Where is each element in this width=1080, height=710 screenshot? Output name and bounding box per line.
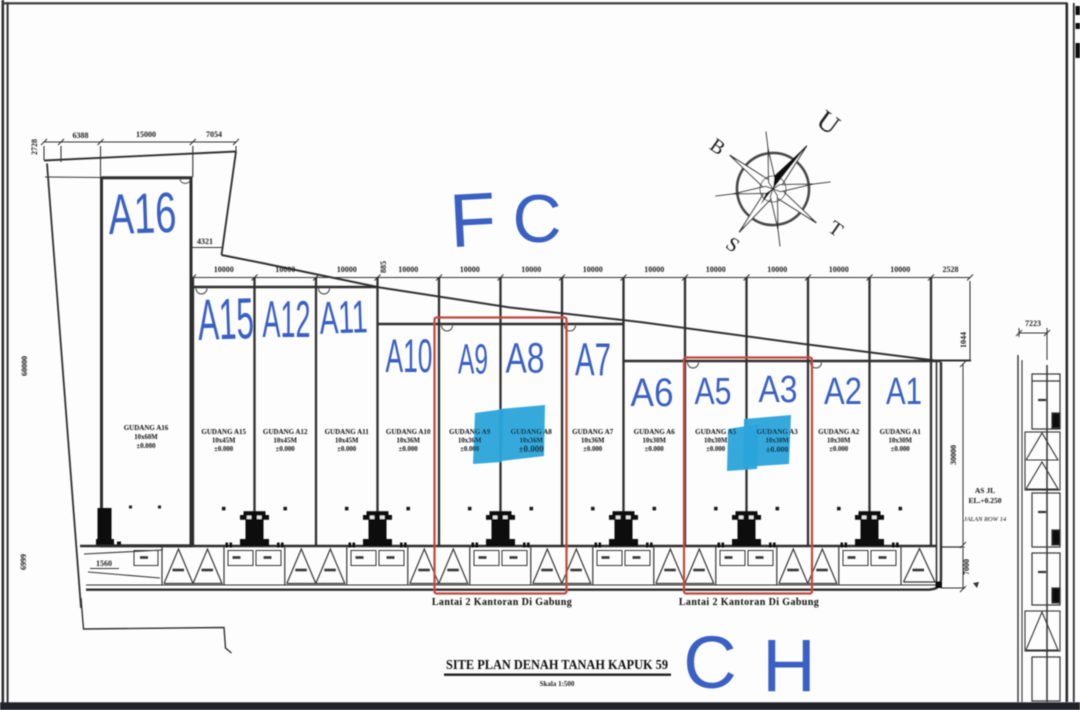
svg-text:885: 885 [379, 261, 388, 273]
svg-text:4321: 4321 [197, 237, 213, 246]
svg-text:10000: 10000 [829, 265, 849, 274]
svg-text:±0.000: ±0.000 [460, 446, 480, 453]
svg-text:EL.+0.250: EL.+0.250 [968, 496, 1001, 505]
svg-text:A10: A10 [386, 329, 433, 382]
svg-text:GUDANG A15: GUDANG A15 [201, 428, 246, 436]
svg-text:±0.000: ±0.000 [706, 446, 726, 453]
svg-text:10000: 10000 [767, 265, 787, 274]
svg-text:A9: A9 [458, 336, 488, 384]
svg-text:T: T [824, 217, 847, 242]
svg-text:10x45M: 10x45M [273, 438, 297, 445]
svg-text:1044: 1044 [959, 332, 968, 348]
svg-text:JALAN ROW 14: JALAN ROW 14 [964, 516, 1007, 523]
svg-text:H: H [762, 624, 815, 707]
svg-text:60000: 60000 [20, 356, 29, 376]
svg-text:GUDANG A11: GUDANG A11 [325, 428, 370, 436]
svg-text:10x45M: 10x45M [335, 438, 359, 445]
svg-text:15000: 15000 [136, 130, 156, 139]
svg-text:±0.000: ±0.000 [399, 446, 419, 453]
svg-text:10x60M: 10x60M [134, 434, 158, 441]
svg-text:GUDANG A10: GUDANG A10 [386, 428, 431, 436]
svg-text:±0.000: ±0.000 [519, 444, 545, 454]
svg-text:Lantai 2 Kantoran Di Gabung: Lantai 2 Kantoran Di Gabung [679, 597, 819, 608]
svg-text:10000: 10000 [890, 265, 910, 274]
svg-text:A11: A11 [319, 290, 369, 344]
svg-text:10x30M: 10x30M [704, 438, 728, 445]
svg-text:10000: 10000 [521, 265, 541, 274]
svg-text:F: F [447, 177, 498, 264]
svg-text:±0.000: ±0.000 [766, 445, 788, 454]
svg-text:SITE PLAN DENAH TANAH KAPUK 59: SITE PLAN DENAH TANAH KAPUK 59 [446, 658, 668, 673]
svg-text:Skala 1:500: Skala 1:500 [540, 680, 575, 688]
svg-text:AS JL: AS JL [975, 486, 995, 495]
svg-text:10000: 10000 [583, 265, 603, 274]
svg-text:A5: A5 [695, 371, 732, 413]
svg-text:7223: 7223 [1025, 319, 1041, 328]
svg-text:±0.000: ±0.000 [276, 446, 296, 453]
svg-text:GUDANG A5: GUDANG A5 [695, 428, 737, 436]
svg-text:10x36M: 10x36M [581, 438, 605, 445]
svg-text:6999: 6999 [19, 554, 28, 570]
svg-text:±0.000: ±0.000 [337, 446, 357, 453]
svg-text:±0.000: ±0.000 [829, 446, 849, 453]
svg-text:±0.000: ±0.000 [583, 446, 603, 453]
svg-text:7054: 7054 [206, 130, 222, 139]
svg-text:10x36M: 10x36M [458, 438, 482, 445]
svg-text:7000: 7000 [962, 559, 971, 575]
svg-text:GUDANG A6: GUDANG A6 [634, 428, 676, 436]
svg-text:GUDANG A16: GUDANG A16 [124, 424, 169, 432]
svg-text:GUDANG A9: GUDANG A9 [449, 428, 491, 436]
svg-text:GUDANG A1: GUDANG A1 [880, 428, 922, 436]
svg-text:U: U [811, 105, 846, 142]
svg-text:A7: A7 [575, 334, 611, 386]
svg-text:A3: A3 [759, 369, 798, 411]
svg-text:±0.000: ±0.000 [891, 446, 911, 453]
svg-text:A8: A8 [506, 335, 545, 383]
svg-text:10000: 10000 [275, 265, 295, 274]
svg-text:10x30M: 10x30M [642, 438, 666, 445]
svg-text:30000: 30000 [949, 445, 958, 465]
svg-text:C: C [512, 181, 561, 257]
svg-text:10000: 10000 [460, 265, 480, 274]
svg-text:10x45M: 10x45M [212, 438, 236, 445]
svg-text:A1: A1 [886, 371, 922, 413]
svg-text:GUDANG A8: GUDANG A8 [511, 428, 553, 436]
svg-text:GUDANG A7: GUDANG A7 [572, 428, 614, 436]
svg-text:A15: A15 [197, 286, 255, 353]
svg-text:10000: 10000 [706, 265, 726, 274]
svg-text:10x30M: 10x30M [827, 438, 851, 445]
svg-text:10000: 10000 [398, 265, 418, 274]
svg-text:6388: 6388 [73, 131, 89, 140]
svg-text:10000: 10000 [644, 265, 664, 274]
svg-text:S: S [722, 233, 744, 257]
svg-text:A12: A12 [263, 291, 311, 349]
svg-text:A2: A2 [824, 371, 862, 413]
svg-text:A6: A6 [631, 371, 674, 415]
svg-text:GUDANG A2: GUDANG A2 [818, 428, 860, 436]
svg-text:C: C [683, 621, 736, 704]
svg-text:2728: 2728 [30, 139, 39, 155]
svg-text:Lantai 2 Kantoran Di Gabung: Lantai 2 Kantoran Di Gabung [432, 597, 572, 608]
svg-text:10x36M: 10x36M [396, 438, 420, 445]
svg-text:2528: 2528 [943, 265, 959, 274]
svg-text:10x30M: 10x30M [888, 438, 912, 445]
svg-text:±0.000: ±0.000 [136, 443, 156, 450]
svg-text:GUDANG A12: GUDANG A12 [263, 428, 308, 436]
svg-text:10x30M: 10x30M [765, 438, 789, 445]
svg-text:±0.000: ±0.000 [214, 446, 234, 453]
svg-text:10000: 10000 [214, 265, 234, 274]
svg-text:1560: 1560 [96, 559, 112, 568]
svg-text:B: B [706, 134, 730, 160]
svg-text:A16: A16 [107, 181, 177, 247]
svg-text:10000: 10000 [337, 265, 357, 274]
svg-text:GUDANG A3: GUDANG A3 [757, 428, 799, 436]
svg-text:±0.000: ±0.000 [645, 446, 665, 453]
